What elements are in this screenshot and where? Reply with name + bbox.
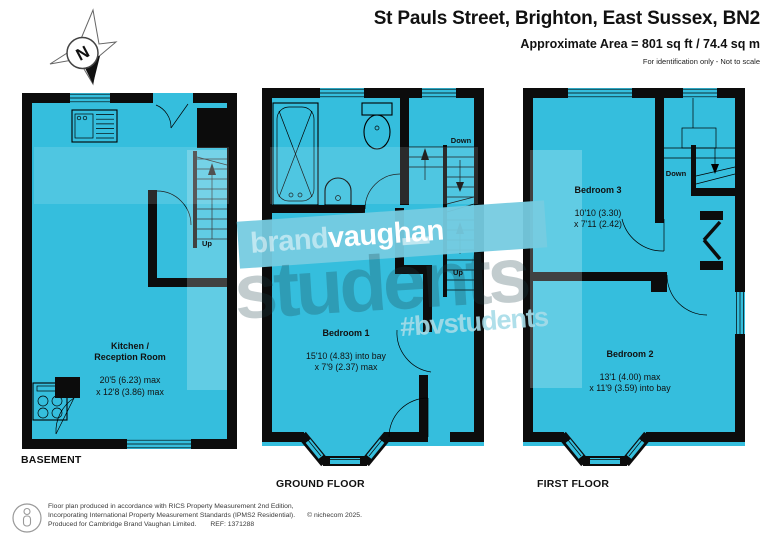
bedroom2-side-window bbox=[735, 292, 745, 334]
basement-bottom-window bbox=[127, 439, 191, 449]
watermark-band-ground-h bbox=[270, 147, 478, 204]
bedroom3-label: Bedroom 3 10'10 (3.30) x 7'11 (2.42) bbox=[538, 173, 658, 242]
basement-stairs-up-label: Up bbox=[196, 239, 218, 248]
compass-north-icon: N bbox=[42, 2, 122, 90]
footer-line1: Floor plan produced in accordance with R… bbox=[48, 503, 294, 510]
bedroom2-label: Bedroom 2 13'1 (4.00) max x 11'9 (3.59) … bbox=[570, 337, 690, 406]
ground-stairs-down-label: Down bbox=[446, 136, 476, 145]
ground-floor-label: GROUND FLOOR bbox=[276, 478, 365, 490]
basement-floor-label: BASEMENT bbox=[21, 454, 82, 466]
floorplan-page: N St Pauls Street, Brighton, East Sussex… bbox=[0, 0, 768, 543]
disclaimer: For identification only - Not to scale bbox=[374, 57, 760, 66]
ground-stairs-up-label: Up bbox=[446, 268, 470, 277]
approximate-area: Approximate Area = 801 sq ft / 74.4 sq m bbox=[374, 37, 760, 51]
footer-line3: Produced for Cambridge Brand Vaughan Lim… bbox=[48, 521, 196, 528]
first-stairs-down-label: Down bbox=[660, 169, 692, 178]
footer-ref: REF: 1371288 bbox=[210, 521, 254, 528]
ipms-person-icon bbox=[10, 501, 44, 535]
header: St Pauls Street, Brighton, East Sussex, … bbox=[374, 8, 760, 66]
footer-text: Floor plan produced in accordance with R… bbox=[48, 502, 362, 530]
bedroom1-label: Bedroom 1 15'10 (4.83) into bay x 7'9 (2… bbox=[286, 316, 406, 385]
footer-copyright: © nichecom 2025. bbox=[307, 512, 362, 519]
kitchen-label: Kitchen / Reception Room 20'5 (6.23) max… bbox=[70, 329, 190, 410]
first-floor-label: FIRST FLOOR bbox=[537, 478, 609, 490]
basement-top-window bbox=[70, 93, 110, 103]
page-title: St Pauls Street, Brighton, East Sussex, … bbox=[374, 8, 760, 30]
footer-line2: Incorporating International Property Mea… bbox=[48, 512, 295, 519]
watermark-band-basement-v bbox=[187, 150, 227, 390]
